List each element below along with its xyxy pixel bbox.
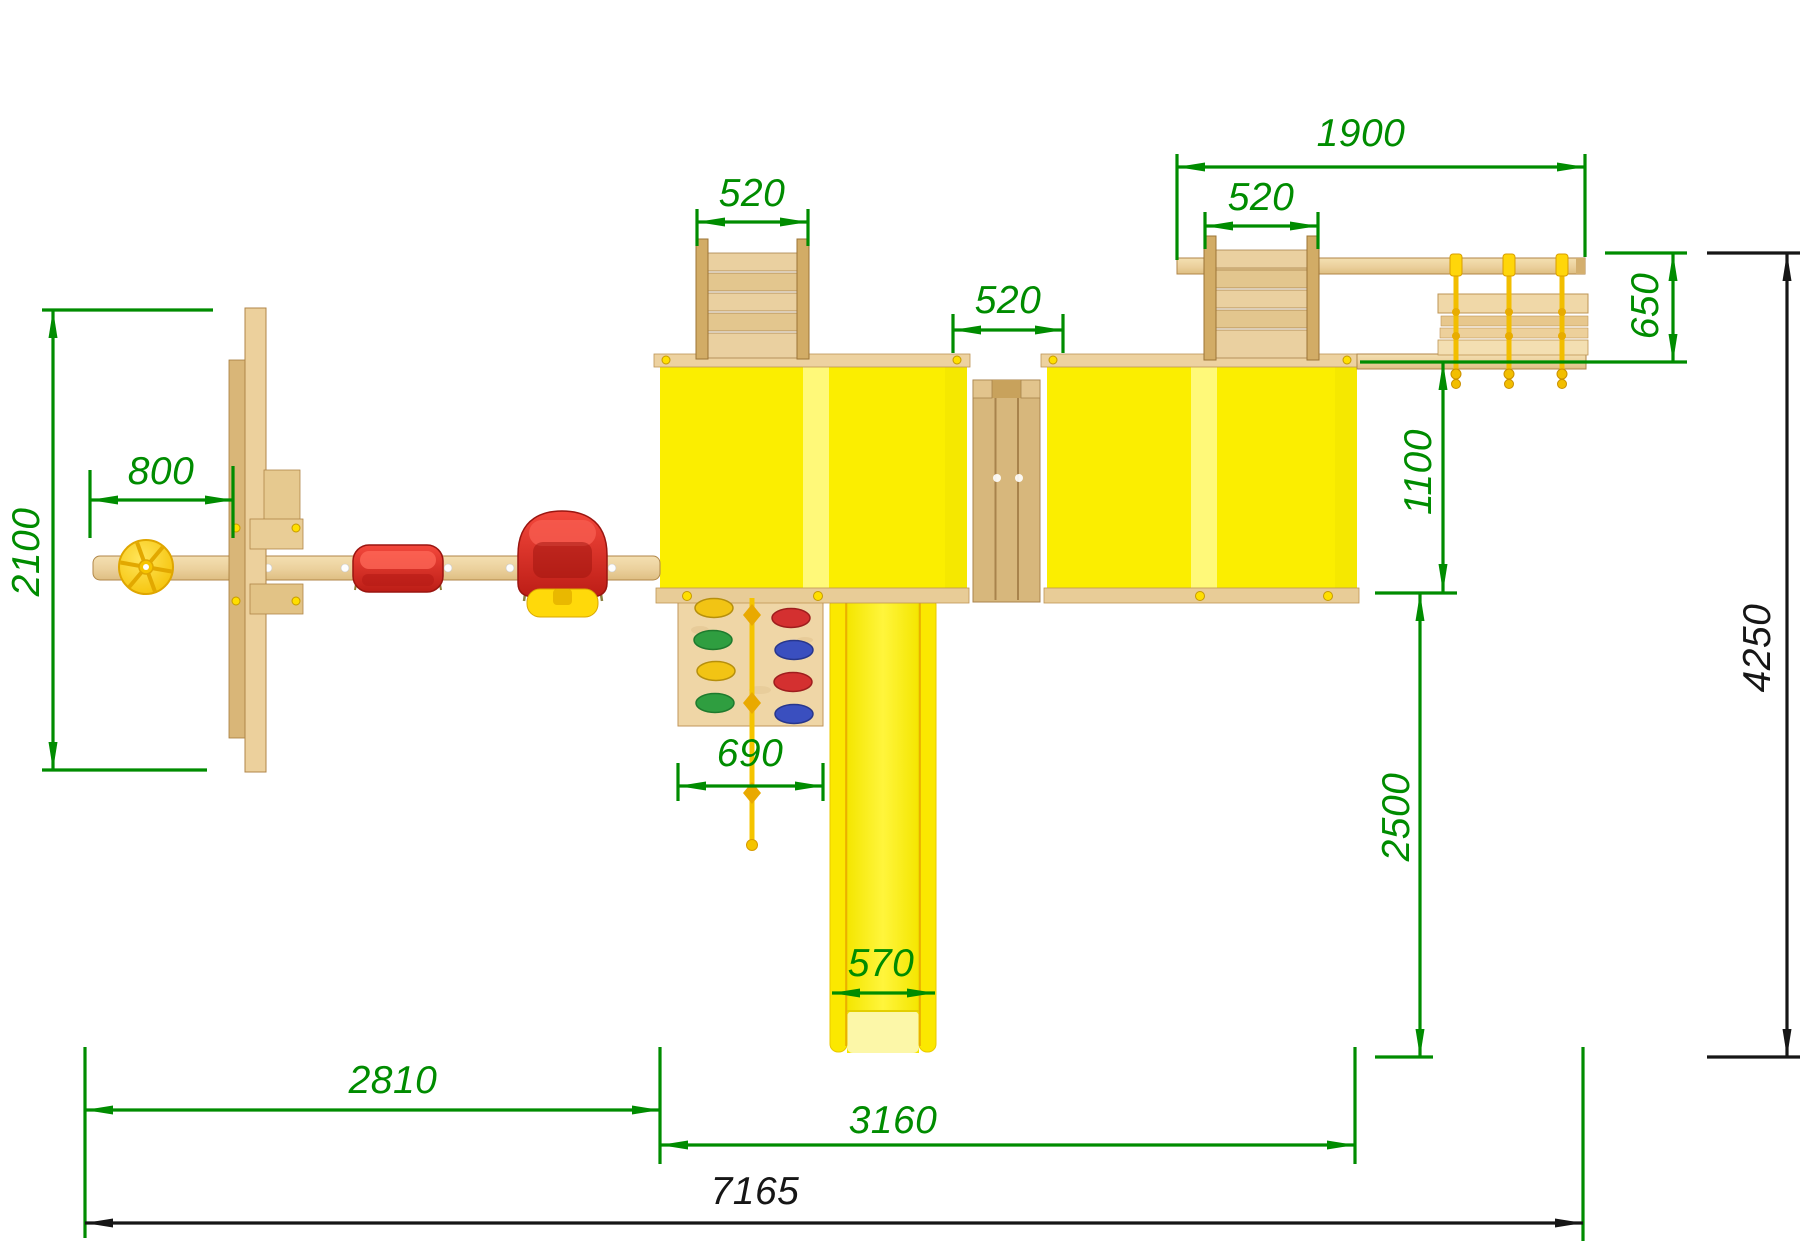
dim-690-label: 690 [717,732,784,775]
hold-yellow-icon [697,662,735,681]
screw-icon [341,564,349,572]
playground-plan-drawing: 800 2100 520 520 520 1900 650 1100 2500 … [0,0,1800,1244]
screw-icon [292,597,300,605]
screw-icon [506,564,514,572]
dim-520-left-label: 520 [719,172,786,215]
rope-knot-icon [1556,254,1568,276]
dim-520-right-label: 520 [1228,176,1295,219]
screw-icon [953,356,961,364]
hold-red-icon [774,673,812,692]
hold-green-icon [696,694,734,713]
screw-icon [608,564,616,572]
screw-icon [1049,356,1057,364]
right-ladder [1204,236,1319,360]
dim-4250-label: 4250 [1736,604,1779,693]
screw-icon [683,592,692,601]
baby-swing-seat [518,511,607,617]
flat-swing-seat [353,545,443,592]
swing-assembly [93,308,660,772]
rope-knot-icon [1503,254,1515,276]
a-frame-post [229,308,303,772]
bridge [973,380,1040,602]
screw-icon [292,524,300,532]
dim-1900-label: 1900 [1317,112,1406,155]
dim-7165-label: 7165 [711,1170,800,1213]
right-tower-roof [1041,354,1360,603]
screw-icon [1343,356,1351,364]
hold-blue-icon [775,705,813,724]
hanging-bench [1438,294,1588,355]
steering-wheel [119,540,173,594]
drawing-canvas: 800 2100 520 520 520 1900 650 1100 2500 … [0,0,1800,1244]
hold-green-icon [694,631,732,650]
screw-icon [232,597,240,605]
left-ladder [696,239,809,359]
dim-1100-label: 1100 [1397,429,1440,515]
dim-520-mid-label: 520 [975,279,1042,322]
dim-650-label: 650 [1624,273,1667,340]
hold-blue-icon [775,641,813,660]
dim-2100-label: 2100 [5,508,48,598]
screw-icon [662,356,670,364]
screw-icon [1324,592,1333,601]
hold-yellow-icon [695,599,733,618]
dim-2500-label: 2500 [1375,773,1418,863]
left-tower-roof [654,354,970,603]
dim-3160-label: 3160 [849,1099,938,1142]
screw-icon [1196,592,1205,601]
screw-icon [444,564,452,572]
dim-2810-label: 2810 [348,1059,438,1102]
screw-icon [814,592,823,601]
screw-icon [993,474,1001,482]
screw-icon [1015,474,1023,482]
dim-800-label: 800 [128,450,195,493]
dim-570-label: 570 [848,942,915,985]
rope-knot-icon [1450,254,1462,276]
hold-red-icon [772,609,810,628]
